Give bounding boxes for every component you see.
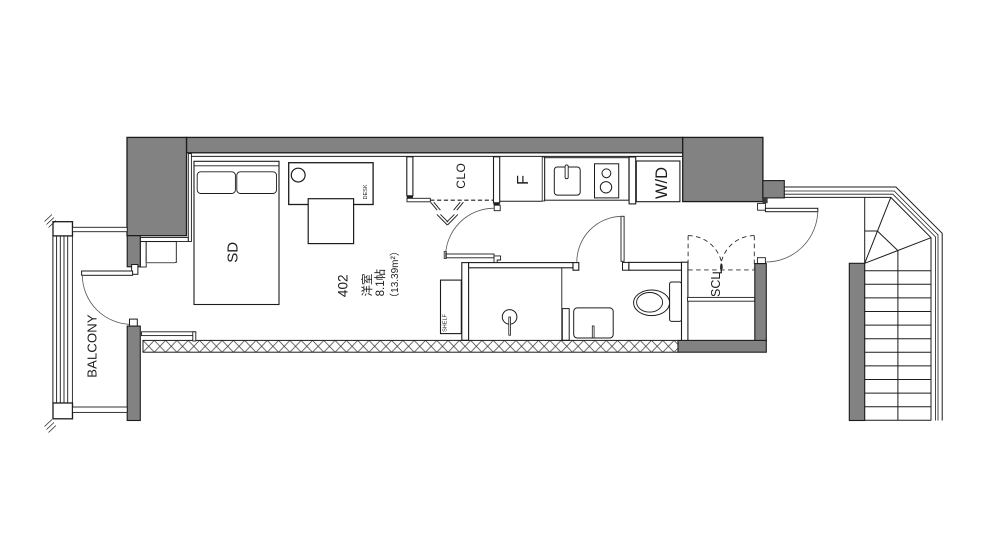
svg-text:洋室: 洋室 <box>360 274 374 297</box>
svg-text:CLO: CLO <box>454 163 468 189</box>
svg-text:8.1帖: 8.1帖 <box>373 269 387 297</box>
svg-text:F: F <box>515 175 532 185</box>
svg-text:DESK: DESK <box>363 184 369 199</box>
svg-text:402: 402 <box>336 275 351 298</box>
svg-text:（13.39m²）: （13.39m²） <box>389 246 401 303</box>
svg-text:W/D: W/D <box>653 167 671 199</box>
svg-text:BALCONY: BALCONY <box>85 314 100 378</box>
svg-text:SD: SD <box>224 242 241 263</box>
svg-text:SCL: SCL <box>709 273 723 297</box>
svg-text:SHELF: SHELF <box>442 313 448 331</box>
